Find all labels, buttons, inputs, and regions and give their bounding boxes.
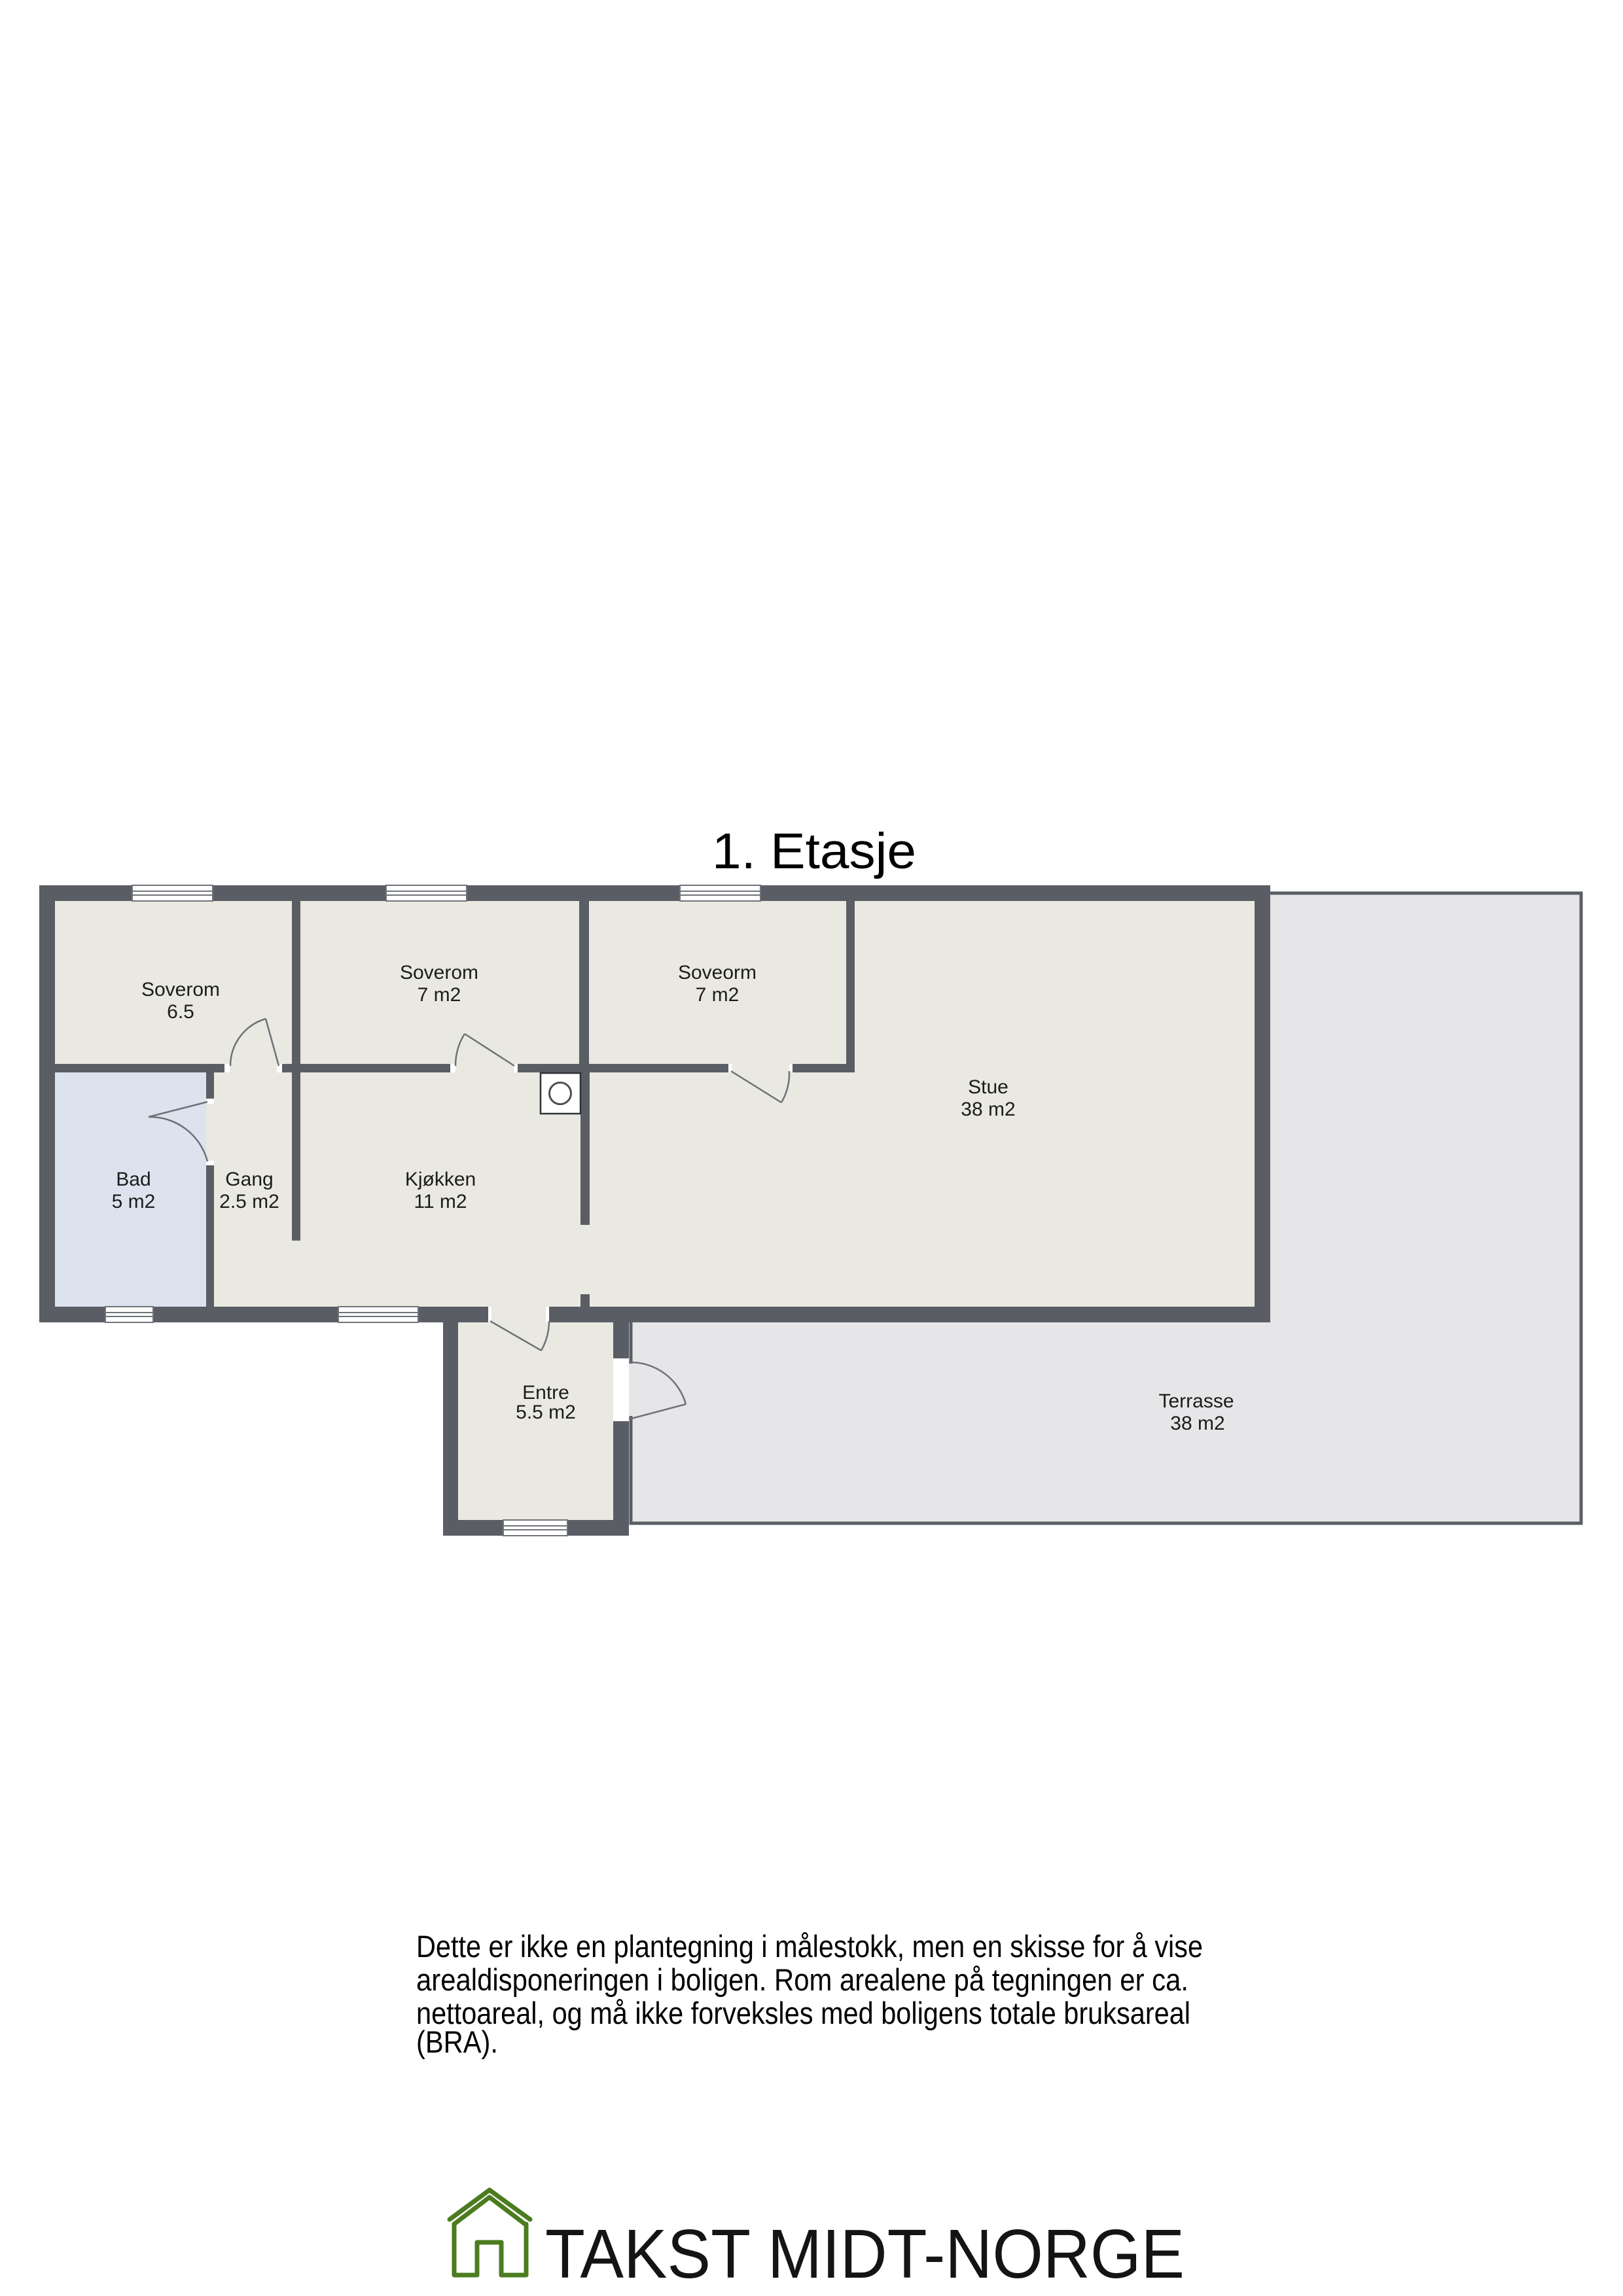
svg-text:38 m2: 38 m2 (1170, 1413, 1224, 1434)
svg-text:(BRA).: (BRA). (416, 2024, 498, 2059)
svg-text:nettoareal, og må ikke forveks: nettoareal, og må ikke forveksles med bo… (416, 1996, 1190, 2030)
svg-text:7 m2: 7 m2 (418, 984, 461, 1006)
svg-text:Stue: Stue (968, 1076, 1008, 1098)
svg-text:5.5 m2: 5.5 m2 (516, 1402, 576, 1423)
svg-text:Soverom: Soverom (141, 979, 220, 1000)
svg-text:7 m2: 7 m2 (696, 984, 740, 1006)
svg-text:Gang: Gang (225, 1169, 273, 1190)
svg-text:11 m2: 11 m2 (414, 1191, 467, 1212)
svg-text:1. Etasje: 1. Etasje (712, 823, 916, 879)
svg-text:Dette er ikke en plantegning i: Dette er ikke en plantegning i målestokk… (416, 1929, 1203, 1964)
svg-text:5 m2: 5 m2 (112, 1191, 156, 1212)
svg-text:Soverom: Soverom (400, 962, 478, 983)
svg-text:Terrasse: Terrasse (1158, 1390, 1234, 1412)
svg-text:arealdisponeringen i boligen.: arealdisponeringen i boligen. Rom areale… (416, 1962, 1188, 1997)
svg-text:Soveorm: Soveorm (678, 962, 757, 983)
svg-text:6.5: 6.5 (167, 1001, 194, 1023)
svg-text:Entre: Entre (522, 1382, 569, 1404)
svg-text:TAKST MIDT-NORGE: TAKST MIDT-NORGE (545, 2216, 1185, 2293)
svg-text:Bad: Bad (116, 1169, 151, 1190)
svg-text:38 m2: 38 m2 (961, 1099, 1015, 1120)
svg-text:2.5 m2: 2.5 m2 (219, 1191, 279, 1212)
svg-text:Kjøkken: Kjøkken (405, 1169, 476, 1190)
